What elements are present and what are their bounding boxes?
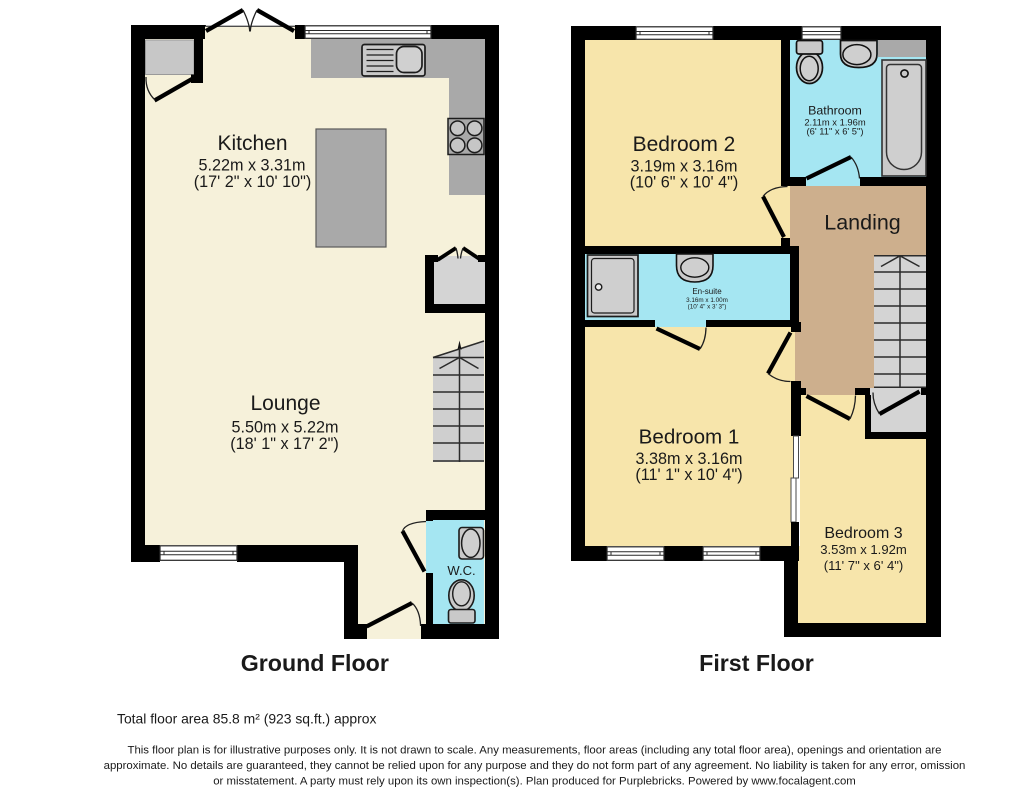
svg-text:approximate. No details are gu: approximate. No details are guaranteed, …: [104, 760, 966, 772]
svg-text:First Floor: First Floor: [699, 650, 814, 676]
svg-text:Ground Floor: Ground Floor: [241, 650, 389, 676]
svg-text:(11' 7" x 6' 4"): (11' 7" x 6' 4"): [824, 558, 904, 573]
svg-text:En-suite: En-suite: [692, 287, 722, 296]
svg-text:3.53m x 1.92m: 3.53m x 1.92m: [820, 542, 907, 557]
svg-text:3.38m x 3.16m: 3.38m x 3.16m: [635, 450, 742, 468]
svg-text:Bedroom 1: Bedroom 1: [639, 425, 740, 448]
svg-text:W.C.: W.C.: [447, 563, 475, 578]
svg-text:(6' 11" x 6' 5"): (6' 11" x 6' 5"): [807, 126, 864, 137]
svg-text:5.22m x 3.31m: 5.22m x 3.31m: [198, 156, 305, 174]
svg-text:(11' 1" x 10' 4"): (11' 1" x 10' 4"): [635, 466, 742, 484]
svg-text:(10' 6" x 10' 4"): (10' 6" x 10' 4"): [630, 174, 739, 192]
svg-text:or misstatement. A party must: or misstatement. A party must rely upon …: [213, 776, 856, 788]
svg-text:(17' 2" x 10' 10"): (17' 2" x 10' 10"): [194, 173, 312, 191]
svg-text:Total floor area 85.8 m² (923: Total floor area 85.8 m² (923 sq.ft.) ap…: [117, 711, 376, 727]
svg-text:Kitchen: Kitchen: [217, 132, 287, 155]
svg-text:3.19m x 3.16m: 3.19m x 3.16m: [630, 157, 737, 175]
svg-text:5.50m x 5.22m: 5.50m x 5.22m: [231, 418, 338, 436]
svg-text:(18' 1" x 17' 2"): (18' 1" x 17' 2"): [230, 435, 339, 453]
svg-text:Bedroom 2: Bedroom 2: [633, 133, 736, 156]
svg-text:Bedroom 3: Bedroom 3: [824, 525, 902, 542]
svg-text:(10' 4" x 3' 3"): (10' 4" x 3' 3"): [688, 304, 727, 311]
svg-text:This floor plan is for illustr: This floor plan is for illustrative purp…: [127, 745, 941, 757]
svg-text:Landing: Landing: [824, 211, 901, 235]
svg-text:Lounge: Lounge: [250, 392, 320, 415]
